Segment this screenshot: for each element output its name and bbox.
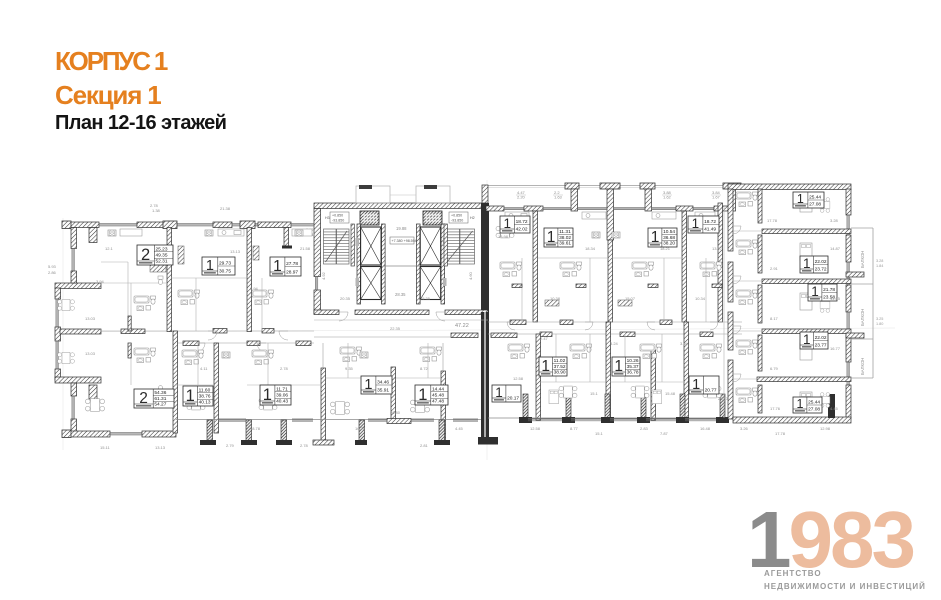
svg-text:18.34: 18.34 xyxy=(585,246,596,251)
svg-text:4.60: 4.60 xyxy=(468,271,473,280)
svg-text:20.80: 20.80 xyxy=(390,410,401,415)
svg-text:2.78: 2.78 xyxy=(300,443,309,448)
svg-text:18.78: 18.78 xyxy=(250,426,261,431)
svg-text:1.63: 1.63 xyxy=(554,195,563,200)
svg-text:30.75: 30.75 xyxy=(219,269,231,275)
svg-text:H2: H2 xyxy=(470,216,475,220)
svg-text:1: 1 xyxy=(503,216,511,231)
svg-text:+7.380 +98.594: +7.380 +98.594 xyxy=(392,239,417,243)
svg-text:15.07: 15.07 xyxy=(625,296,636,301)
svg-text:16.78: 16.78 xyxy=(355,426,366,431)
svg-text:13.03: 13.03 xyxy=(85,316,96,321)
svg-text:40.43: 40.43 xyxy=(276,399,288,405)
svg-text:13.03: 13.03 xyxy=(85,351,96,356)
svg-text:52.31: 52.31 xyxy=(156,259,168,265)
svg-text:6.79: 6.79 xyxy=(770,366,779,371)
svg-text:3.04: 3.04 xyxy=(680,341,689,346)
svg-text:12.58: 12.58 xyxy=(513,376,524,381)
svg-text:2.47: 2.47 xyxy=(540,336,549,341)
svg-text:9.35: 9.35 xyxy=(345,366,354,371)
svg-text:3.24: 3.24 xyxy=(610,341,619,346)
svg-text:23.72: 23.72 xyxy=(815,267,827,273)
svg-text:21.38: 21.38 xyxy=(220,206,231,211)
svg-text:15.48: 15.48 xyxy=(665,391,676,396)
svg-text:18.72: 18.72 xyxy=(516,219,528,225)
svg-text:12.58: 12.58 xyxy=(530,426,541,431)
svg-text:2.83: 2.83 xyxy=(640,426,649,431)
svg-text:17.76: 17.76 xyxy=(770,406,781,411)
svg-text:1.38: 1.38 xyxy=(152,208,161,213)
svg-text:38.02: 38.02 xyxy=(559,235,571,241)
svg-text:16.77: 16.77 xyxy=(830,346,841,351)
svg-text:17.78: 17.78 xyxy=(767,218,778,223)
svg-text:2.91: 2.91 xyxy=(770,266,779,271)
svg-text:+0.850: +0.850 xyxy=(332,214,343,218)
svg-text:БАЛКОН: БАЛКОН xyxy=(860,309,865,326)
svg-text:3.94: 3.94 xyxy=(96,279,105,284)
svg-text:1: 1 xyxy=(418,386,427,404)
svg-text:5.93: 5.93 xyxy=(48,264,57,269)
svg-text:36.68: 36.68 xyxy=(663,235,675,241)
svg-text:2.86: 2.86 xyxy=(48,270,57,275)
svg-text:20.33: 20.33 xyxy=(718,396,729,401)
svg-text:14.05: 14.05 xyxy=(830,296,841,301)
svg-text:18.72: 18.72 xyxy=(704,219,716,225)
svg-text:1: 1 xyxy=(797,192,804,206)
svg-text:27.78: 27.78 xyxy=(286,261,298,267)
svg-text:12.98: 12.98 xyxy=(820,426,831,431)
svg-text:22.02: 22.02 xyxy=(815,335,827,341)
svg-text:15.11: 15.11 xyxy=(100,445,110,450)
svg-text:13.07: 13.07 xyxy=(712,246,723,251)
svg-text:61.31: 61.31 xyxy=(154,396,166,402)
svg-text:+0.850: +0.850 xyxy=(451,214,462,218)
svg-text:47.22: 47.22 xyxy=(455,323,469,329)
svg-text:28.97: 28.97 xyxy=(286,270,298,276)
svg-text:15.1: 15.1 xyxy=(590,391,599,396)
svg-text:1: 1 xyxy=(803,256,811,271)
svg-text:28.35: 28.35 xyxy=(395,292,406,297)
svg-text:25.35: 25.35 xyxy=(420,296,431,301)
svg-text:49.35: 49.35 xyxy=(156,253,168,259)
svg-text:18.98: 18.98 xyxy=(498,234,509,239)
svg-text:4.11: 4.11 xyxy=(200,366,208,371)
svg-text:21.58: 21.58 xyxy=(300,246,311,251)
svg-text:29.73: 29.73 xyxy=(219,260,231,266)
svg-text:1.62: 1.62 xyxy=(663,195,672,200)
svg-text:19.88: 19.88 xyxy=(396,226,407,231)
svg-text:1.67: 1.67 xyxy=(712,195,721,200)
svg-text:14.87: 14.87 xyxy=(830,246,841,251)
svg-text:20.77: 20.77 xyxy=(705,388,717,394)
svg-text:22.02: 22.02 xyxy=(815,259,827,265)
svg-text:39.06: 39.06 xyxy=(276,393,288,399)
svg-text:1: 1 xyxy=(811,284,819,299)
svg-text:1: 1 xyxy=(186,387,195,405)
svg-text:3.28: 3.28 xyxy=(876,259,883,263)
svg-text:13.13: 13.13 xyxy=(155,445,166,450)
svg-text:1.80: 1.80 xyxy=(876,322,883,326)
svg-text:1: 1 xyxy=(614,358,623,375)
svg-text:22.35: 22.35 xyxy=(390,326,401,331)
svg-text:27.08: 27.08 xyxy=(809,202,821,208)
svg-text:2: 2 xyxy=(139,390,148,407)
svg-text:12.1: 12.1 xyxy=(105,246,114,251)
svg-text:13.13: 13.13 xyxy=(230,249,241,254)
svg-text:1: 1 xyxy=(273,258,282,275)
svg-text:2.81: 2.81 xyxy=(420,443,429,448)
svg-text:54.27: 54.27 xyxy=(154,402,166,408)
svg-text:38.90: 38.90 xyxy=(554,370,566,376)
svg-text:25.44: 25.44 xyxy=(809,194,821,200)
svg-text:18.21: 18.21 xyxy=(660,246,671,251)
svg-text:1: 1 xyxy=(206,258,214,274)
svg-text:2.78: 2.78 xyxy=(280,366,289,371)
svg-text:2.20: 2.20 xyxy=(517,195,526,200)
svg-text:1.84: 1.84 xyxy=(876,264,883,268)
svg-text:37.52: 37.52 xyxy=(554,364,566,370)
svg-text:3.26: 3.26 xyxy=(740,426,749,431)
svg-text:10.34: 10.34 xyxy=(695,296,706,301)
svg-text:4.92: 4.92 xyxy=(321,271,326,280)
svg-text:H3: H3 xyxy=(325,216,330,220)
svg-text:27.08: 27.08 xyxy=(808,407,820,413)
svg-text:36.78: 36.78 xyxy=(627,370,639,376)
svg-text:-93.850: -93.850 xyxy=(332,219,344,223)
svg-text:7.87: 7.87 xyxy=(660,431,669,436)
svg-text:1: 1 xyxy=(495,385,503,400)
svg-text:20.35: 20.35 xyxy=(340,296,351,301)
svg-text:1: 1 xyxy=(692,216,700,231)
svg-text:БАЛКОН: БАЛКОН xyxy=(860,251,865,268)
svg-text:34.46: 34.46 xyxy=(377,379,389,385)
svg-text:20.17: 20.17 xyxy=(507,396,519,402)
svg-text:1: 1 xyxy=(263,386,272,404)
svg-text:8.17: 8.17 xyxy=(770,316,779,321)
svg-text:41.49: 41.49 xyxy=(704,227,716,233)
svg-text:17.78: 17.78 xyxy=(775,431,786,436)
svg-text:35.37: 35.37 xyxy=(627,364,639,370)
svg-text:1: 1 xyxy=(692,377,700,393)
svg-text:1: 1 xyxy=(547,229,556,246)
svg-text:4.45: 4.45 xyxy=(455,426,464,431)
svg-text:1: 1 xyxy=(364,377,372,393)
svg-text:35.91: 35.91 xyxy=(377,388,389,394)
svg-text:3.28: 3.28 xyxy=(830,218,839,223)
svg-text:8.77: 8.77 xyxy=(570,426,579,431)
svg-text:2.79: 2.79 xyxy=(226,443,235,448)
svg-text:25.44: 25.44 xyxy=(808,399,820,405)
svg-text:23.77: 23.77 xyxy=(815,343,827,349)
svg-text:1: 1 xyxy=(651,229,660,246)
svg-text:47.48: 47.48 xyxy=(432,399,444,405)
svg-text:4.45: 4.45 xyxy=(830,406,839,411)
svg-text:42.02: 42.02 xyxy=(516,227,528,233)
svg-text:-93.850: -93.850 xyxy=(451,219,463,223)
svg-text:3.25: 3.25 xyxy=(876,317,883,321)
svg-text:5.94: 5.94 xyxy=(250,286,259,291)
svg-text:38.76: 38.76 xyxy=(199,394,211,400)
svg-text:8.72: 8.72 xyxy=(420,366,429,371)
svg-text:1: 1 xyxy=(797,397,804,411)
svg-text:39.61: 39.61 xyxy=(559,241,571,247)
svg-text:1: 1 xyxy=(803,332,811,347)
svg-text:21.78: 21.78 xyxy=(823,287,835,293)
svg-text:45.48: 45.48 xyxy=(432,393,444,399)
svg-text:40.13: 40.13 xyxy=(199,400,211,406)
svg-text:БАЛКОН: БАЛКОН xyxy=(860,358,865,375)
svg-text:15.1: 15.1 xyxy=(595,431,604,436)
svg-text:10.38: 10.38 xyxy=(550,296,561,301)
svg-text:1: 1 xyxy=(541,358,550,375)
svg-text:2: 2 xyxy=(141,246,150,264)
svg-text:16.48: 16.48 xyxy=(700,426,711,431)
